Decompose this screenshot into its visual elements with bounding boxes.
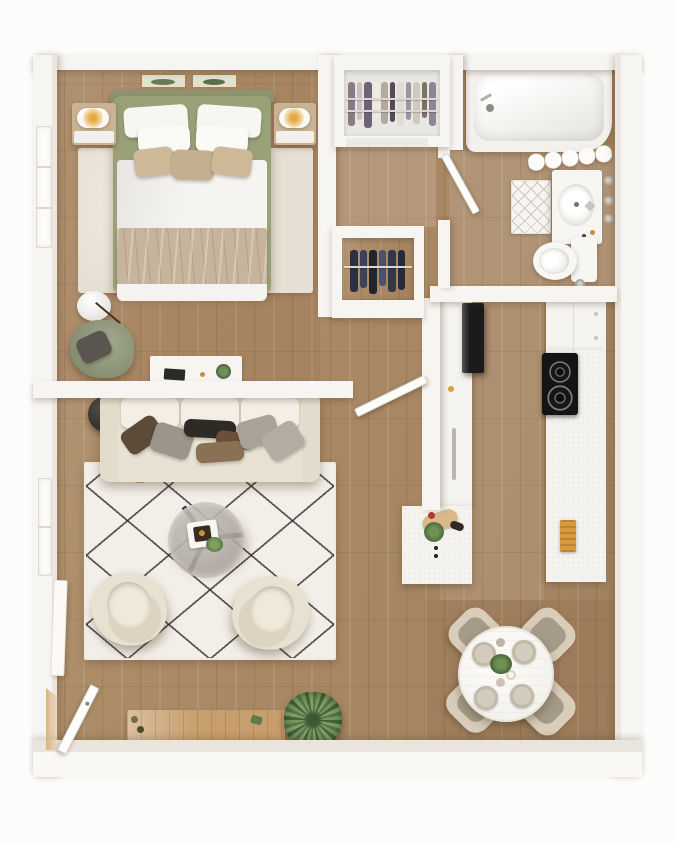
bathtub bbox=[466, 66, 612, 152]
nightstand-right bbox=[274, 103, 316, 145]
lamp-glow bbox=[83, 108, 103, 128]
media-console bbox=[127, 710, 285, 740]
bathroom-south-wall bbox=[430, 286, 617, 302]
soap-dot bbox=[590, 230, 595, 235]
closet-rod bbox=[344, 266, 412, 268]
hanging-clothes bbox=[348, 82, 436, 130]
outer-wall-bottom bbox=[33, 740, 642, 777]
console-decor bbox=[250, 715, 263, 726]
small-bowl bbox=[496, 638, 505, 647]
bedroom-living-wall bbox=[33, 381, 353, 398]
hanging-clothes bbox=[350, 250, 406, 294]
kitchen-west-wall bbox=[422, 298, 440, 510]
closet-rod bbox=[346, 98, 438, 100]
chair-pillow bbox=[74, 328, 114, 365]
vanity-sink bbox=[552, 170, 602, 244]
tub-drain bbox=[486, 104, 494, 112]
art-motif bbox=[203, 79, 225, 85]
place-setting bbox=[474, 686, 498, 710]
foot-blanket bbox=[117, 228, 267, 286]
upper-cabinets bbox=[546, 302, 606, 352]
wall-art bbox=[140, 73, 187, 89]
sink-drain bbox=[574, 202, 579, 207]
herb-plant bbox=[424, 522, 444, 542]
outer-wall-right bbox=[615, 55, 642, 777]
chair-seat bbox=[245, 581, 299, 636]
console-knob bbox=[131, 716, 138, 723]
nightstand-left bbox=[72, 103, 116, 145]
floor-plan bbox=[0, 0, 675, 844]
small-bowl bbox=[496, 678, 505, 687]
desk-plant bbox=[216, 364, 231, 379]
bath-mat bbox=[511, 180, 551, 234]
lamp-glow bbox=[284, 108, 304, 128]
cabinet-divider bbox=[573, 302, 574, 352]
island-knob bbox=[434, 554, 438, 558]
closet-bedroom bbox=[332, 226, 424, 318]
place-setting bbox=[512, 640, 536, 664]
closet-interior bbox=[344, 70, 440, 136]
sofa-arm-left bbox=[100, 392, 118, 482]
cooktop bbox=[542, 353, 578, 415]
counter-item bbox=[448, 386, 454, 392]
nightstand-drawer bbox=[276, 131, 314, 143]
refrigerator bbox=[462, 303, 484, 373]
wall-hook bbox=[604, 176, 613, 185]
art-motif bbox=[151, 79, 175, 85]
wall-art bbox=[191, 73, 238, 89]
place-setting bbox=[510, 684, 534, 708]
sofa-arm-right bbox=[302, 392, 320, 482]
throw-blanket bbox=[195, 440, 244, 463]
pepper-mill bbox=[449, 520, 465, 532]
kitchen-island bbox=[402, 506, 472, 584]
closet-top bbox=[334, 55, 450, 147]
oven-towel bbox=[560, 520, 576, 552]
bedroom-side-table bbox=[77, 291, 111, 321]
wall-hook bbox=[604, 196, 613, 205]
door-knob bbox=[85, 701, 90, 706]
accent-pillow bbox=[210, 146, 253, 179]
chair-seat bbox=[102, 577, 156, 632]
accent-pillow bbox=[171, 149, 214, 180]
bath-west-wall bbox=[438, 220, 450, 288]
coffee-table-plant bbox=[206, 537, 223, 552]
burner bbox=[549, 361, 571, 383]
console-knob bbox=[137, 726, 144, 733]
round-dining-table bbox=[458, 626, 554, 722]
cabinet-knob bbox=[594, 312, 598, 316]
bedroom-window bbox=[36, 126, 52, 248]
reading-chair bbox=[70, 320, 134, 378]
toilet-bowl bbox=[533, 242, 577, 280]
laptop bbox=[164, 368, 186, 380]
sofa bbox=[100, 392, 320, 482]
closet-door-opening bbox=[346, 138, 428, 147]
toilet-seat bbox=[539, 248, 569, 274]
island-knob bbox=[434, 546, 438, 550]
cabinet-knob bbox=[594, 336, 598, 340]
burner bbox=[547, 385, 573, 411]
closet-rod bbox=[346, 110, 438, 112]
nightstand-drawer bbox=[74, 131, 114, 143]
double-bed bbox=[113, 96, 271, 294]
centerpiece-plant bbox=[490, 654, 512, 674]
kitchen-sink bbox=[452, 428, 456, 480]
accent-pillow bbox=[132, 146, 175, 179]
wall-hook bbox=[604, 214, 613, 223]
desk-accessory bbox=[200, 372, 205, 377]
tomato bbox=[428, 512, 435, 519]
living-window bbox=[38, 478, 52, 576]
mattress-foot bbox=[117, 284, 267, 301]
